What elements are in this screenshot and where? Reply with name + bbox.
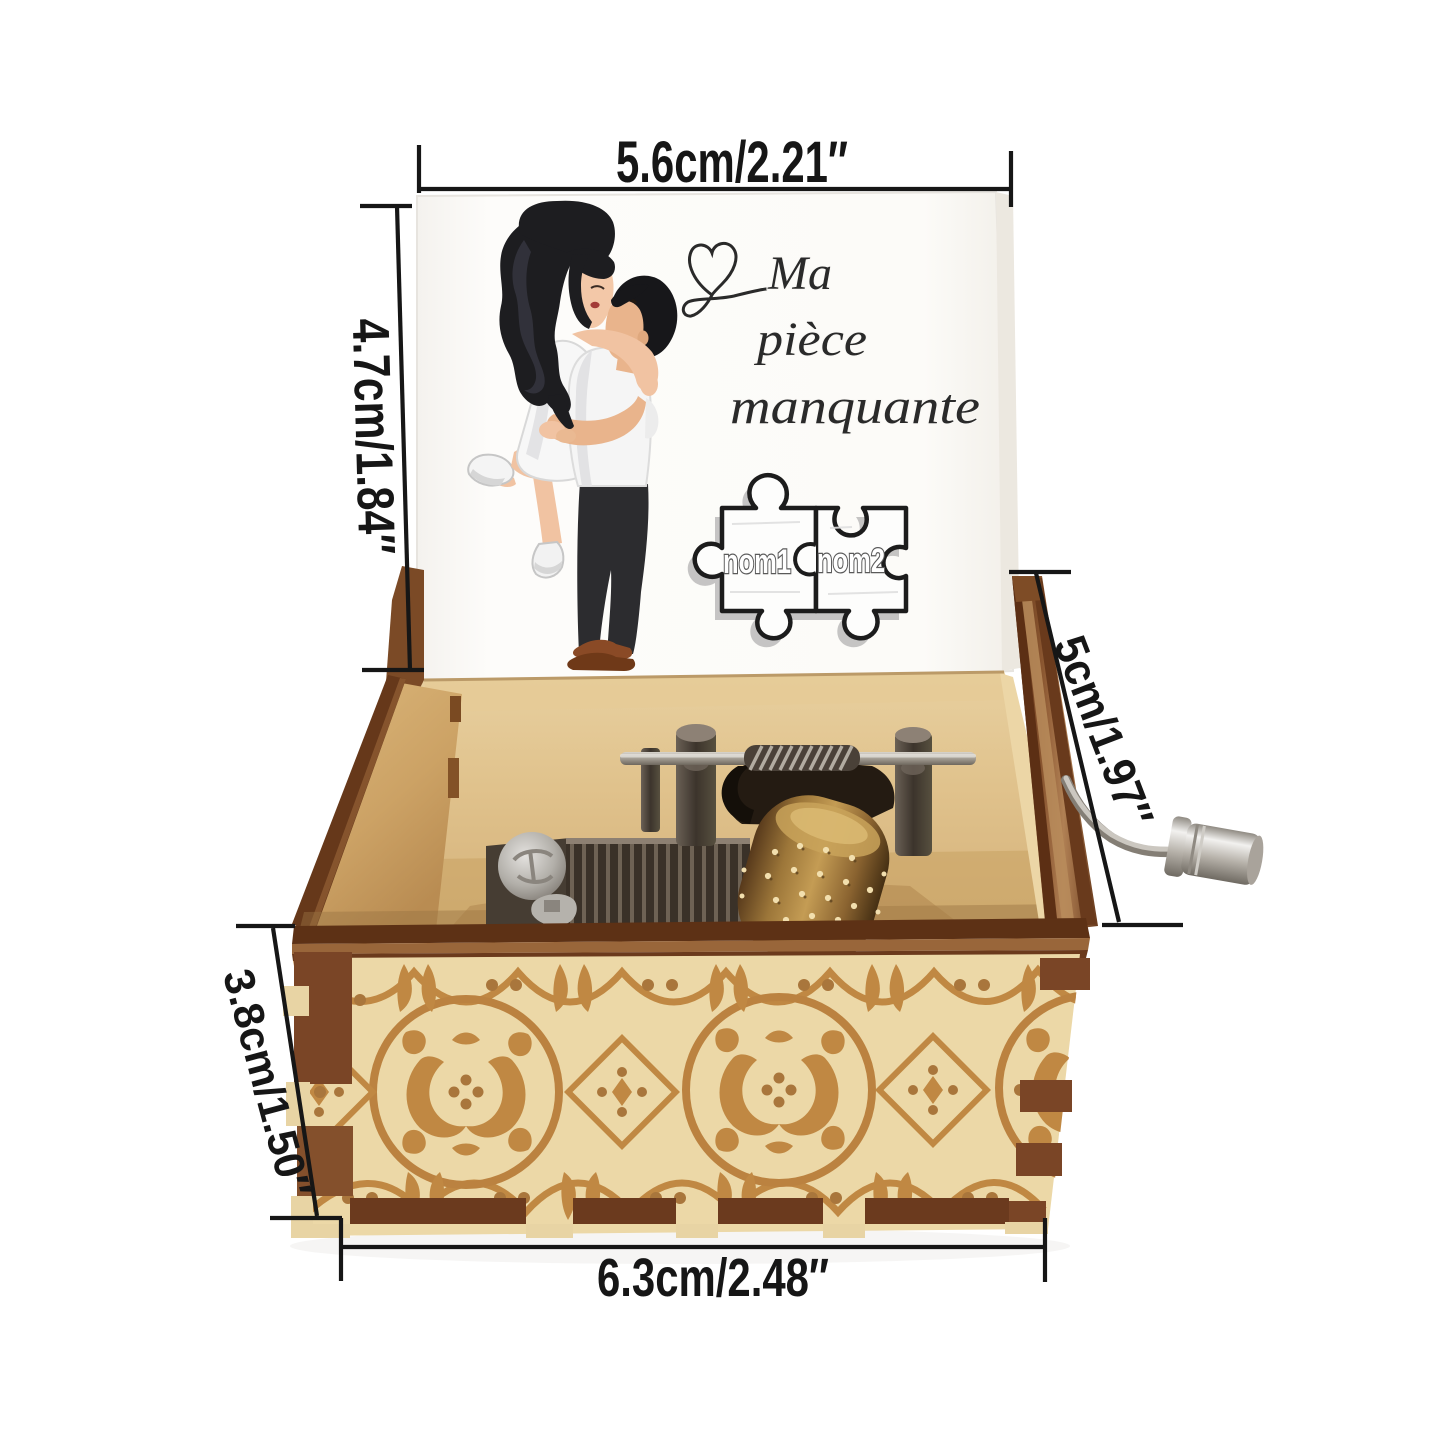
svg-text:pièce: pièce: [754, 313, 867, 366]
svg-text:4.7cm/1.84″: 4.7cm/1.84″: [341, 318, 406, 556]
svg-text:Ma: Ma: [767, 247, 832, 300]
svg-text:manquante: manquante: [730, 378, 980, 434]
svg-text:nom2: nom2: [817, 542, 885, 580]
svg-text:5.6cm/2.21″: 5.6cm/2.21″: [616, 130, 848, 195]
svg-text:6.3cm/2.48″: 6.3cm/2.48″: [597, 1248, 829, 1308]
svg-text:nom1: nom1: [723, 543, 791, 581]
